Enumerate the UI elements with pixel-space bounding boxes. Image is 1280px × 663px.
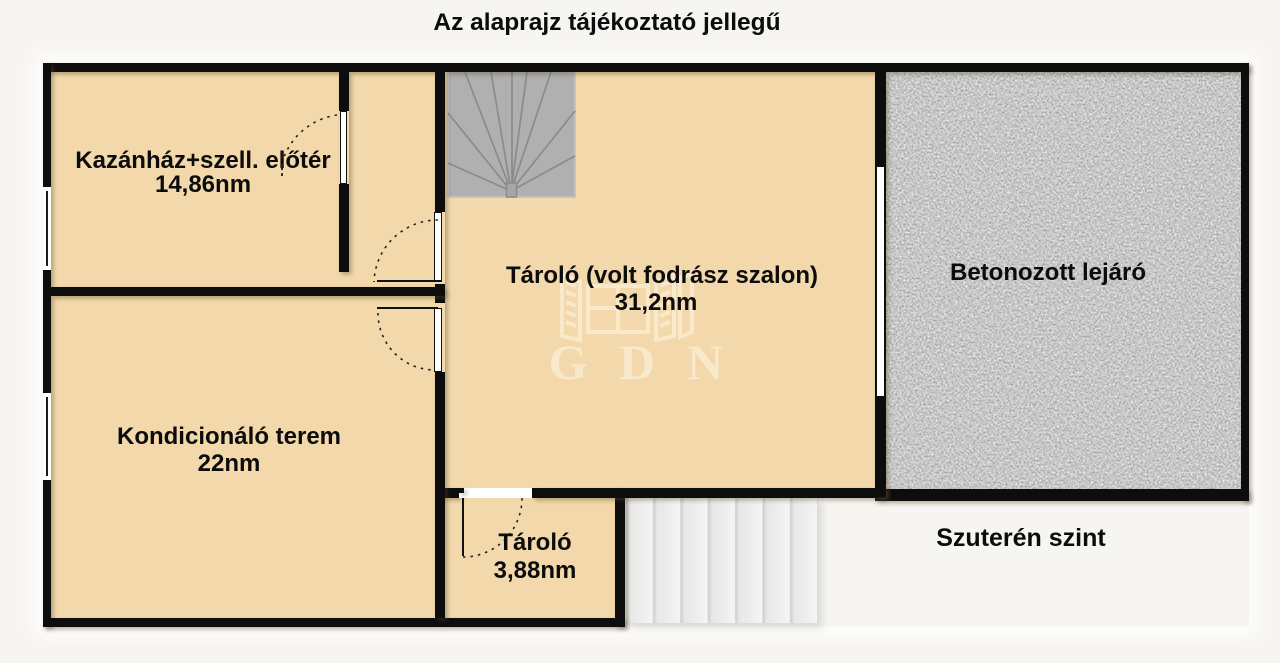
svg-text:N: N — [687, 334, 723, 390]
svg-text:G: G — [549, 334, 588, 390]
svg-text:D: D — [619, 334, 655, 390]
